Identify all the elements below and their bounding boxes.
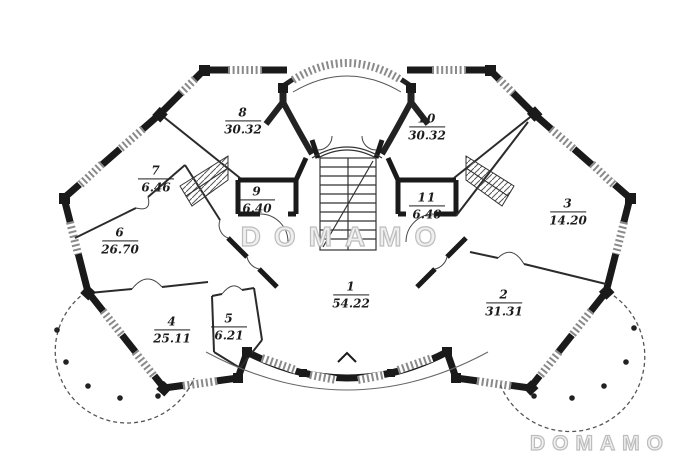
room-label-8: 8 30.32 xyxy=(224,106,262,135)
room-label-3: 3 14.20 xyxy=(549,197,587,226)
room-label-6: 6 26.70 xyxy=(101,226,139,255)
room-label-1: 1 54.22 xyxy=(332,280,370,309)
room-label-5: 5 6.21 xyxy=(211,312,247,341)
watermark-center: DOMAMO xyxy=(241,221,450,253)
terrace-left xyxy=(54,292,194,423)
floor-plan-page: 1 54.22 2 31.31 3 14.20 4 25.11 5 6.21 6… xyxy=(0,0,694,464)
room-label-9: 9 6.40 xyxy=(239,185,275,214)
bay-window xyxy=(266,63,428,154)
room-label-2: 2 31.31 xyxy=(485,288,523,317)
room-label-7: 7 6.46 xyxy=(138,164,174,193)
roof-hatching-left xyxy=(180,156,228,206)
room-label-4: 4 25.11 xyxy=(153,315,191,344)
door-arcs xyxy=(132,136,524,294)
watermark-corner: DOMAMO xyxy=(530,432,670,456)
roof-hatching-right xyxy=(466,156,514,206)
room-label-11: 11 6.40 xyxy=(409,191,445,220)
room-label-10: 10 30.32 xyxy=(408,112,446,141)
